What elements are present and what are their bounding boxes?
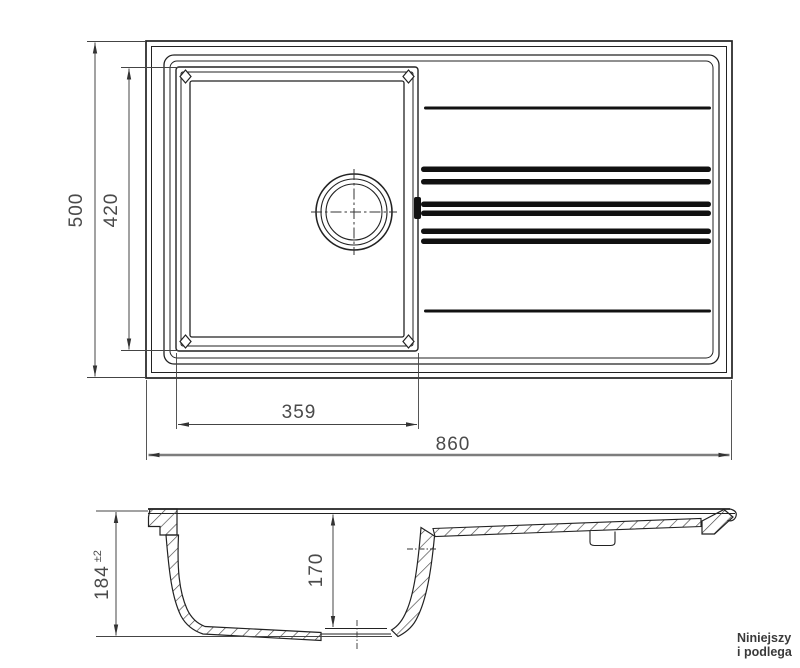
groove <box>421 239 711 245</box>
section-mounting-bump <box>590 531 615 546</box>
drain <box>311 169 397 255</box>
label-overall-depth: 500 <box>66 193 87 228</box>
sink-outer-edge-inner-line <box>152 47 727 373</box>
top-view-dimensions <box>87 42 732 461</box>
section-dimension-labels: 184±2 170 <box>92 550 327 600</box>
groove-thin-bottom <box>424 310 711 313</box>
label-bowl-depth: 170 <box>306 553 327 588</box>
section-dimensions <box>96 511 392 637</box>
label-bowl-length: 420 <box>101 193 122 228</box>
sink-outer-edge <box>146 41 732 378</box>
overflow-channel <box>414 197 421 219</box>
label-overall-width: 860 <box>436 434 471 455</box>
section-bowl-wall <box>166 535 321 641</box>
top-view-dimension-labels: 500 420 359 860 <box>66 193 470 455</box>
groove <box>421 202 711 208</box>
drainboard-grooves <box>414 107 711 313</box>
groove <box>421 179 711 185</box>
rim-outer-line <box>164 55 719 364</box>
drawing-svg: 500 420 359 860 184±2 170 <box>0 0 800 668</box>
footnote-line1: Niniejszy <box>737 631 791 645</box>
footnote: Niniejszy i podlega <box>737 631 793 659</box>
label-bowl-width: 359 <box>282 402 317 423</box>
footnote-line2: i podlega <box>737 645 793 659</box>
groove <box>421 167 711 173</box>
section-bowl-right-wall <box>392 528 435 637</box>
groove-thin-top <box>424 107 711 110</box>
groove <box>421 229 711 235</box>
section-view <box>148 509 736 651</box>
sink-technical-drawing: 500 420 359 860 184±2 170 <box>0 0 800 668</box>
top-view <box>146 41 732 378</box>
groove <box>421 211 711 217</box>
rim-inner-line <box>170 61 713 358</box>
section-left-clip <box>149 509 178 535</box>
label-overall-height: 184±2 <box>92 550 113 600</box>
section-drainboard-panel <box>433 519 701 537</box>
